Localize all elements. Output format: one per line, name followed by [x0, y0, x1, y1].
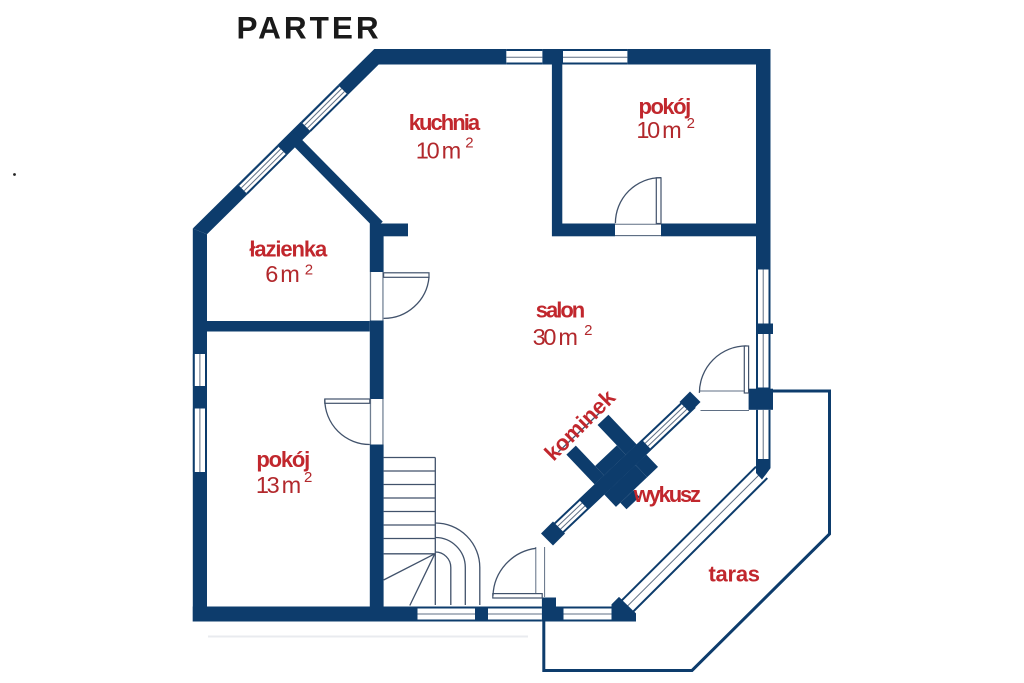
svg-text:pokój: pokój: [639, 94, 691, 119]
svg-text:taras: taras: [709, 561, 760, 586]
svg-text:pokój: pokój: [256, 447, 309, 472]
svg-text:10 m: 10 m: [416, 138, 461, 164]
svg-text:2: 2: [304, 469, 312, 486]
svg-text:2: 2: [584, 322, 592, 339]
svg-text:2: 2: [465, 134, 473, 151]
svg-text:wykusz: wykusz: [633, 482, 701, 507]
svg-text:13 m: 13 m: [256, 472, 301, 498]
svg-text:łazienka: łazienka: [249, 236, 328, 261]
svg-text:30 m: 30 m: [533, 324, 578, 350]
svg-text:PARTER: PARTER: [237, 10, 382, 46]
svg-text:6 m: 6 m: [265, 261, 299, 287]
svg-text:2: 2: [305, 262, 313, 279]
svg-text:kuchnia: kuchnia: [409, 110, 481, 135]
svg-text:salon: salon: [536, 297, 585, 322]
svg-text:2: 2: [687, 115, 695, 132]
svg-text:10 m: 10 m: [636, 117, 681, 143]
